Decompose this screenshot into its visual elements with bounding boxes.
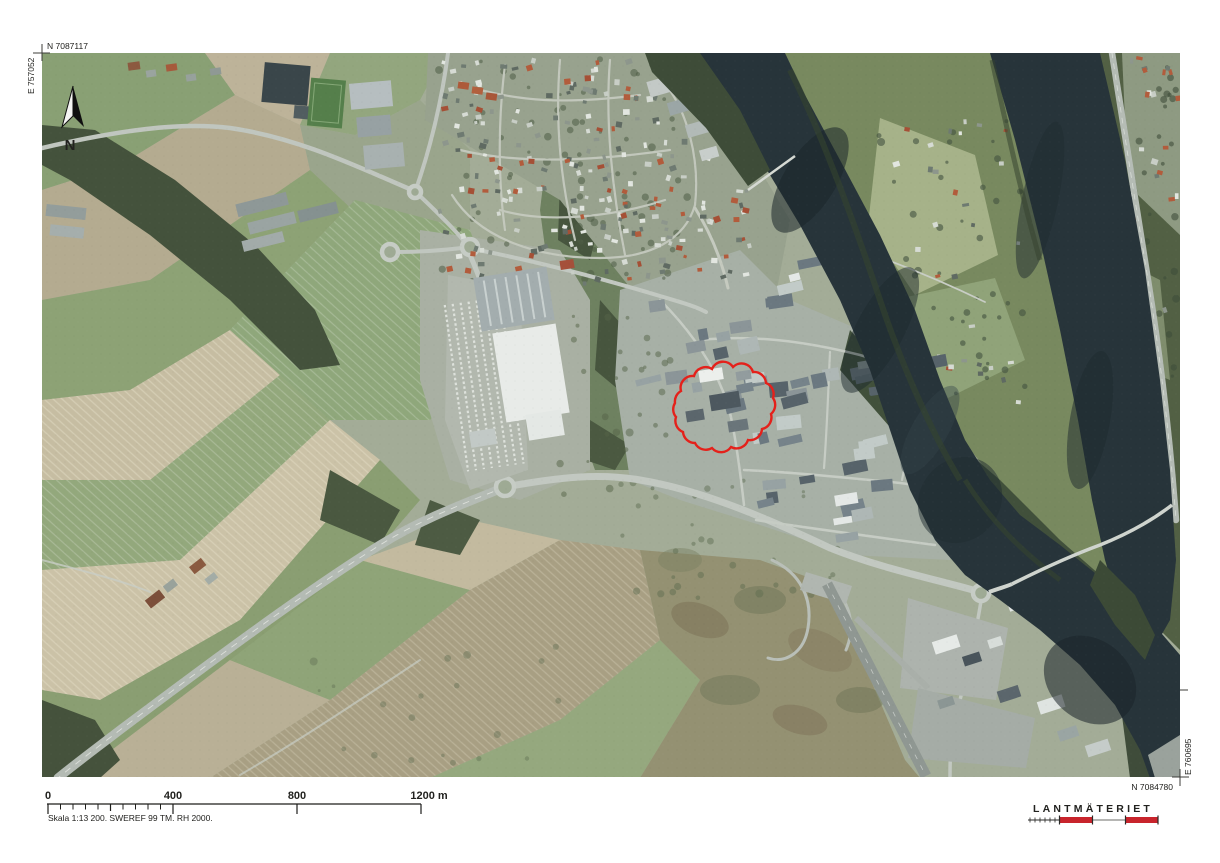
scale-tick-label-800: 800 xyxy=(288,790,306,802)
publisher-name: LANTMÄTERIET xyxy=(1033,802,1153,815)
coord-label-right-easting: E 760695 xyxy=(1183,738,1193,775)
publisher-logo: LANTMÄTERIET xyxy=(1028,802,1158,825)
scale-tick-label-1200: 1200 m xyxy=(410,790,448,802)
scale-tick-label-400: 400 xyxy=(164,790,182,802)
scale-tick-label-0: 0 xyxy=(45,790,51,802)
scale-caption: Skala 1:13 200. SWEREF 99 TM. RH 2000. xyxy=(48,813,213,823)
north-arrow-label: N xyxy=(65,137,76,154)
coord-label-top-left-northing: N 7087117 xyxy=(47,41,88,51)
map-sheet: N N 7087117 E 757052 E 760695 N 7084780 … xyxy=(0,0,1220,863)
coord-label-bottom-right-northing: N 7084780 xyxy=(1131,782,1173,792)
coord-label-left-easting: E 757052 xyxy=(26,57,36,94)
aerial-photo[interactable]: N xyxy=(42,53,1182,778)
logo-scale-bar-icon xyxy=(1028,816,1158,825)
scale-bar: 0 400 800 1200 m Skala 1:13 200. SWEREF … xyxy=(45,790,448,823)
